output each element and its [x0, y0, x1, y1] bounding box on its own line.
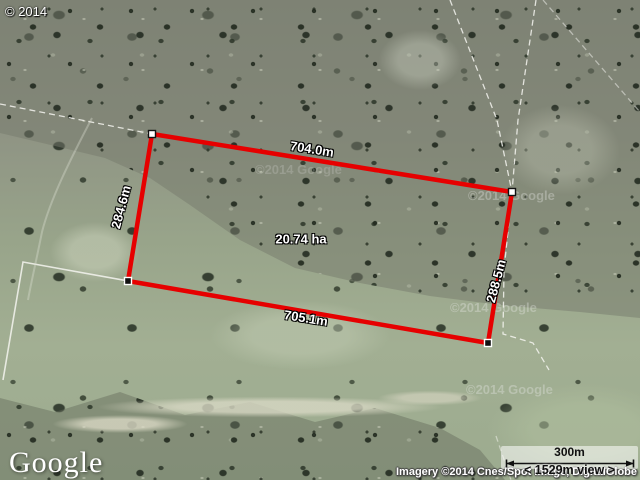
- vertex-handle-top-left[interactable]: [149, 131, 156, 138]
- google-logo[interactable]: Google: [9, 446, 103, 480]
- cadastral-line: [3, 262, 128, 380]
- vertex-handle-bottom-right[interactable]: [485, 340, 492, 347]
- vertex-handle-top-right[interactable]: [509, 189, 516, 196]
- copyright-overlay: © 2014: [5, 4, 47, 19]
- view-extent-label: < 1529m view >: [501, 463, 638, 477]
- scale-distance-label: 300m: [554, 446, 585, 459]
- cadastral-line: [543, 0, 640, 112]
- cadastral-line: [0, 104, 152, 134]
- vertex-handle-bottom-left[interactable]: [125, 278, 132, 285]
- cadastral-line: [512, 0, 536, 192]
- cadastral-line: [450, 0, 512, 192]
- area-label: 20.74 ha: [275, 232, 326, 247]
- map-viewport[interactable]: ©2014 Google ©2014 Google ©2014 Google ©…: [0, 0, 640, 480]
